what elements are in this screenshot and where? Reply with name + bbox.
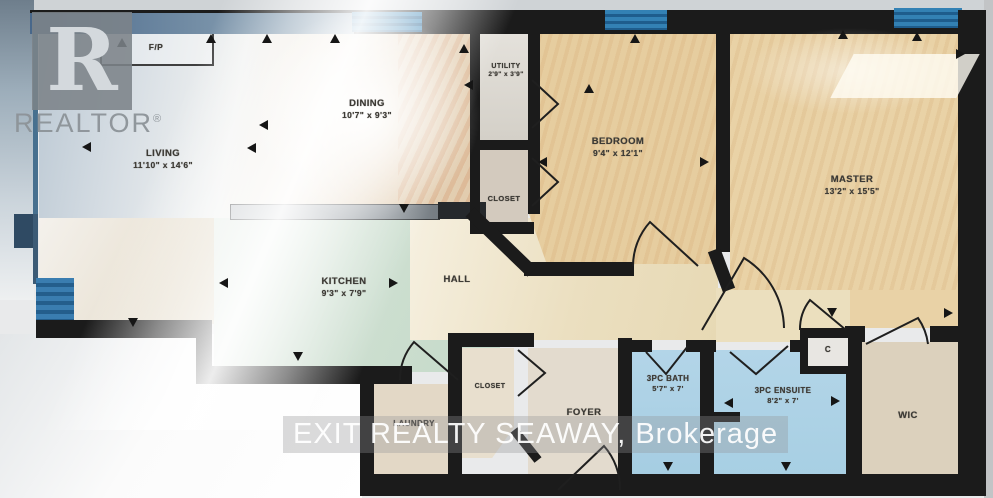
dimension-arrow <box>663 462 673 471</box>
floorplan-photo: LIVING 11'10" x 14'6" DINING 10'7" x 9'3… <box>0 0 993 498</box>
realtor-logo-square: R <box>32 12 132 110</box>
room-label-bedroom: BEDROOM 9'4" x 12'1" <box>548 136 688 159</box>
dimension-arrow <box>944 308 953 318</box>
dimension-arrow <box>700 157 709 167</box>
dimension-arrow <box>584 84 594 93</box>
dimension-arrow <box>459 44 469 53</box>
room-label-living: LIVING 11'10" x 14'6" <box>103 148 223 171</box>
dimension-arrow <box>330 34 340 43</box>
room-label-master: MASTER 13'2" x 15'5" <box>782 174 922 197</box>
registered-trademark-symbol: ® <box>153 113 163 125</box>
dimension-arrow <box>206 34 216 43</box>
dimension-arrow <box>827 308 837 317</box>
room-label-closet-c: C <box>818 345 838 355</box>
room-label-ensuite: 3PC ENSUITE 8'2" x 7' <box>723 386 843 406</box>
room-label-kitchen: KITCHEN 9'3" x 7'9" <box>284 276 404 299</box>
room-label-bath: 3PC BATH 5'7" x 7' <box>628 374 708 394</box>
realtor-logo-wordmark: REALTOR® <box>14 108 163 139</box>
dimension-arrow <box>781 462 791 471</box>
dimension-arrow <box>630 34 640 43</box>
dimension-arrow <box>219 278 228 288</box>
room-label-wic: WIC <box>878 410 938 422</box>
dimension-arrow <box>247 143 256 153</box>
glare-master-streak <box>830 54 979 98</box>
dimension-arrow <box>128 318 138 327</box>
room-label-utility: UTILITY 2'9" x 3'9" <box>474 62 538 80</box>
room-label-bedroom-closet: CLOSET <box>474 194 534 204</box>
room-label-dining: DINING 10'7" x 9'3" <box>307 98 427 121</box>
realtor-logo: R REALTOR® <box>14 4 174 144</box>
realtor-logo-letter: R <box>46 18 117 104</box>
dimension-arrow <box>262 34 272 43</box>
brokerage-watermark: EXIT REALTY SEAWAY, Brokerage <box>283 416 788 453</box>
dimension-arrow <box>912 32 922 41</box>
dimension-arrow <box>259 120 268 130</box>
dimension-arrow <box>838 30 848 39</box>
dimension-arrow <box>464 80 473 90</box>
dimension-arrow <box>293 352 303 361</box>
room-label-hall: HALL <box>417 274 497 286</box>
dimension-arrow <box>538 157 547 167</box>
dimension-arrow <box>956 49 965 59</box>
dimension-arrow <box>399 204 409 213</box>
room-label-foyer-closet: CLOSET <box>458 382 522 391</box>
